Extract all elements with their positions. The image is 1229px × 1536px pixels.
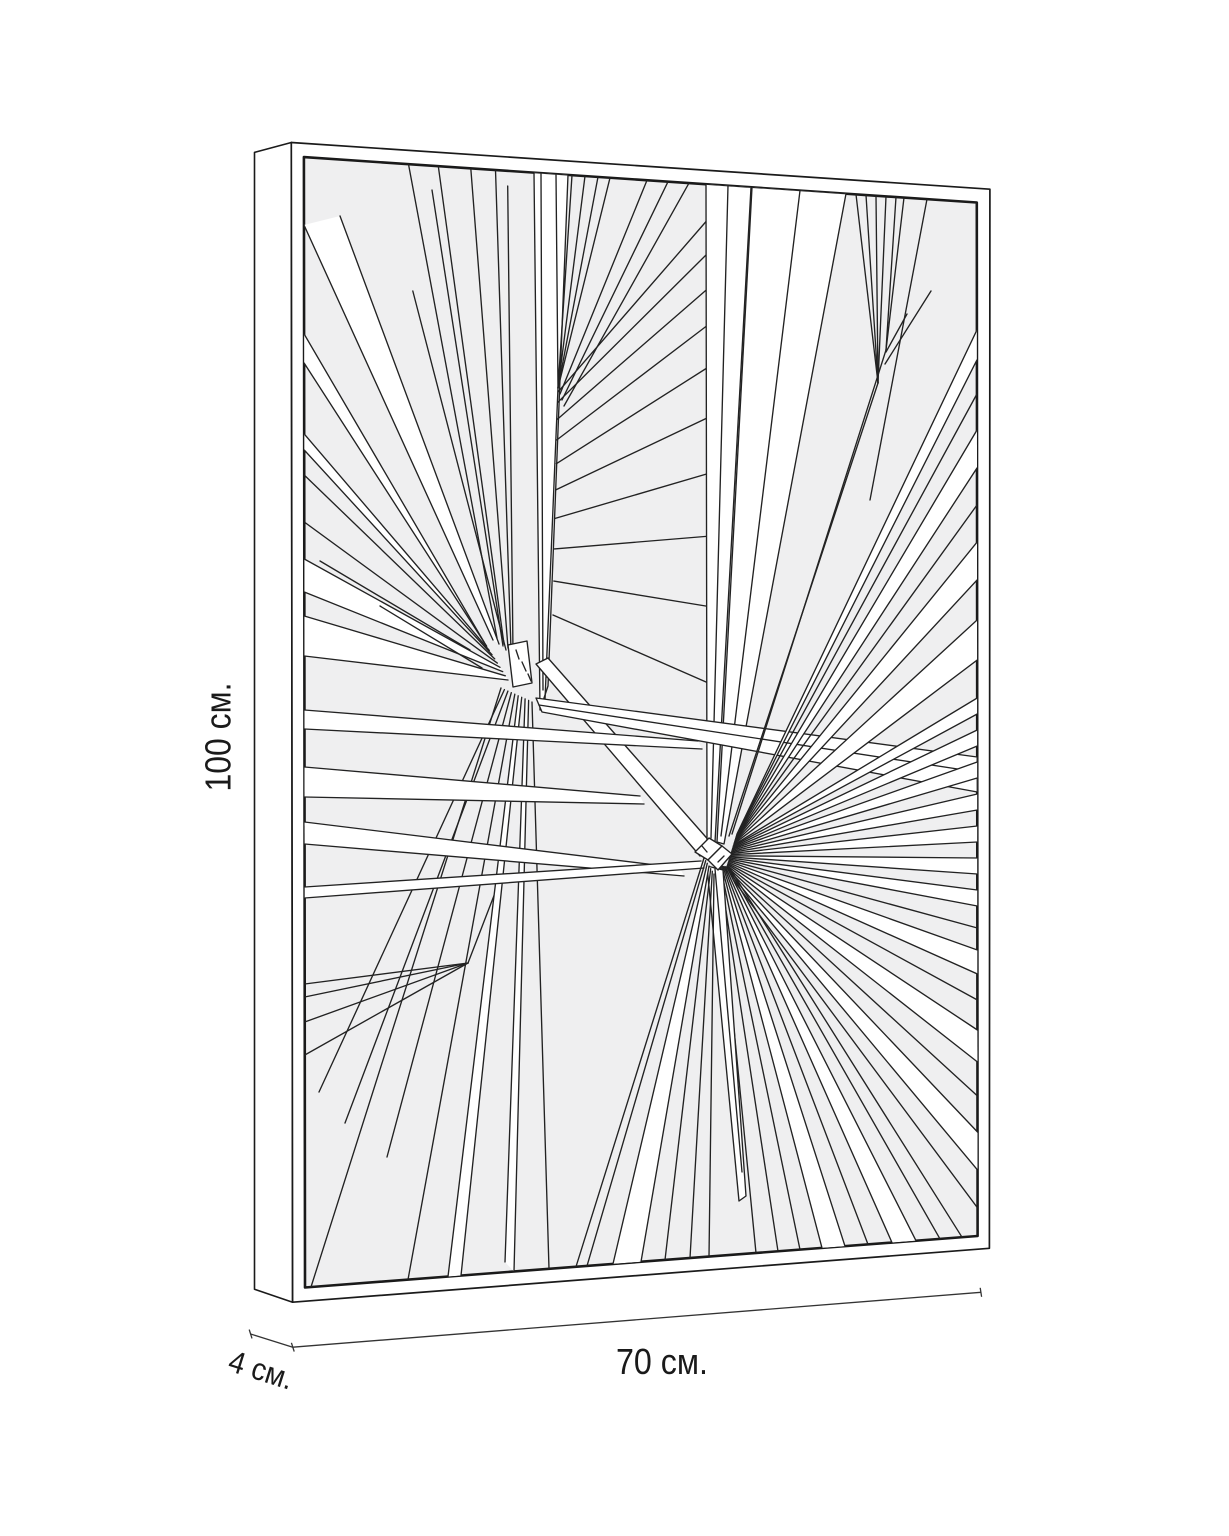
svg-text:4 см.: 4 см. bbox=[224, 1343, 297, 1396]
svg-text:70 см.: 70 см. bbox=[616, 1341, 708, 1382]
svg-text:100 см.: 100 см. bbox=[198, 683, 239, 792]
